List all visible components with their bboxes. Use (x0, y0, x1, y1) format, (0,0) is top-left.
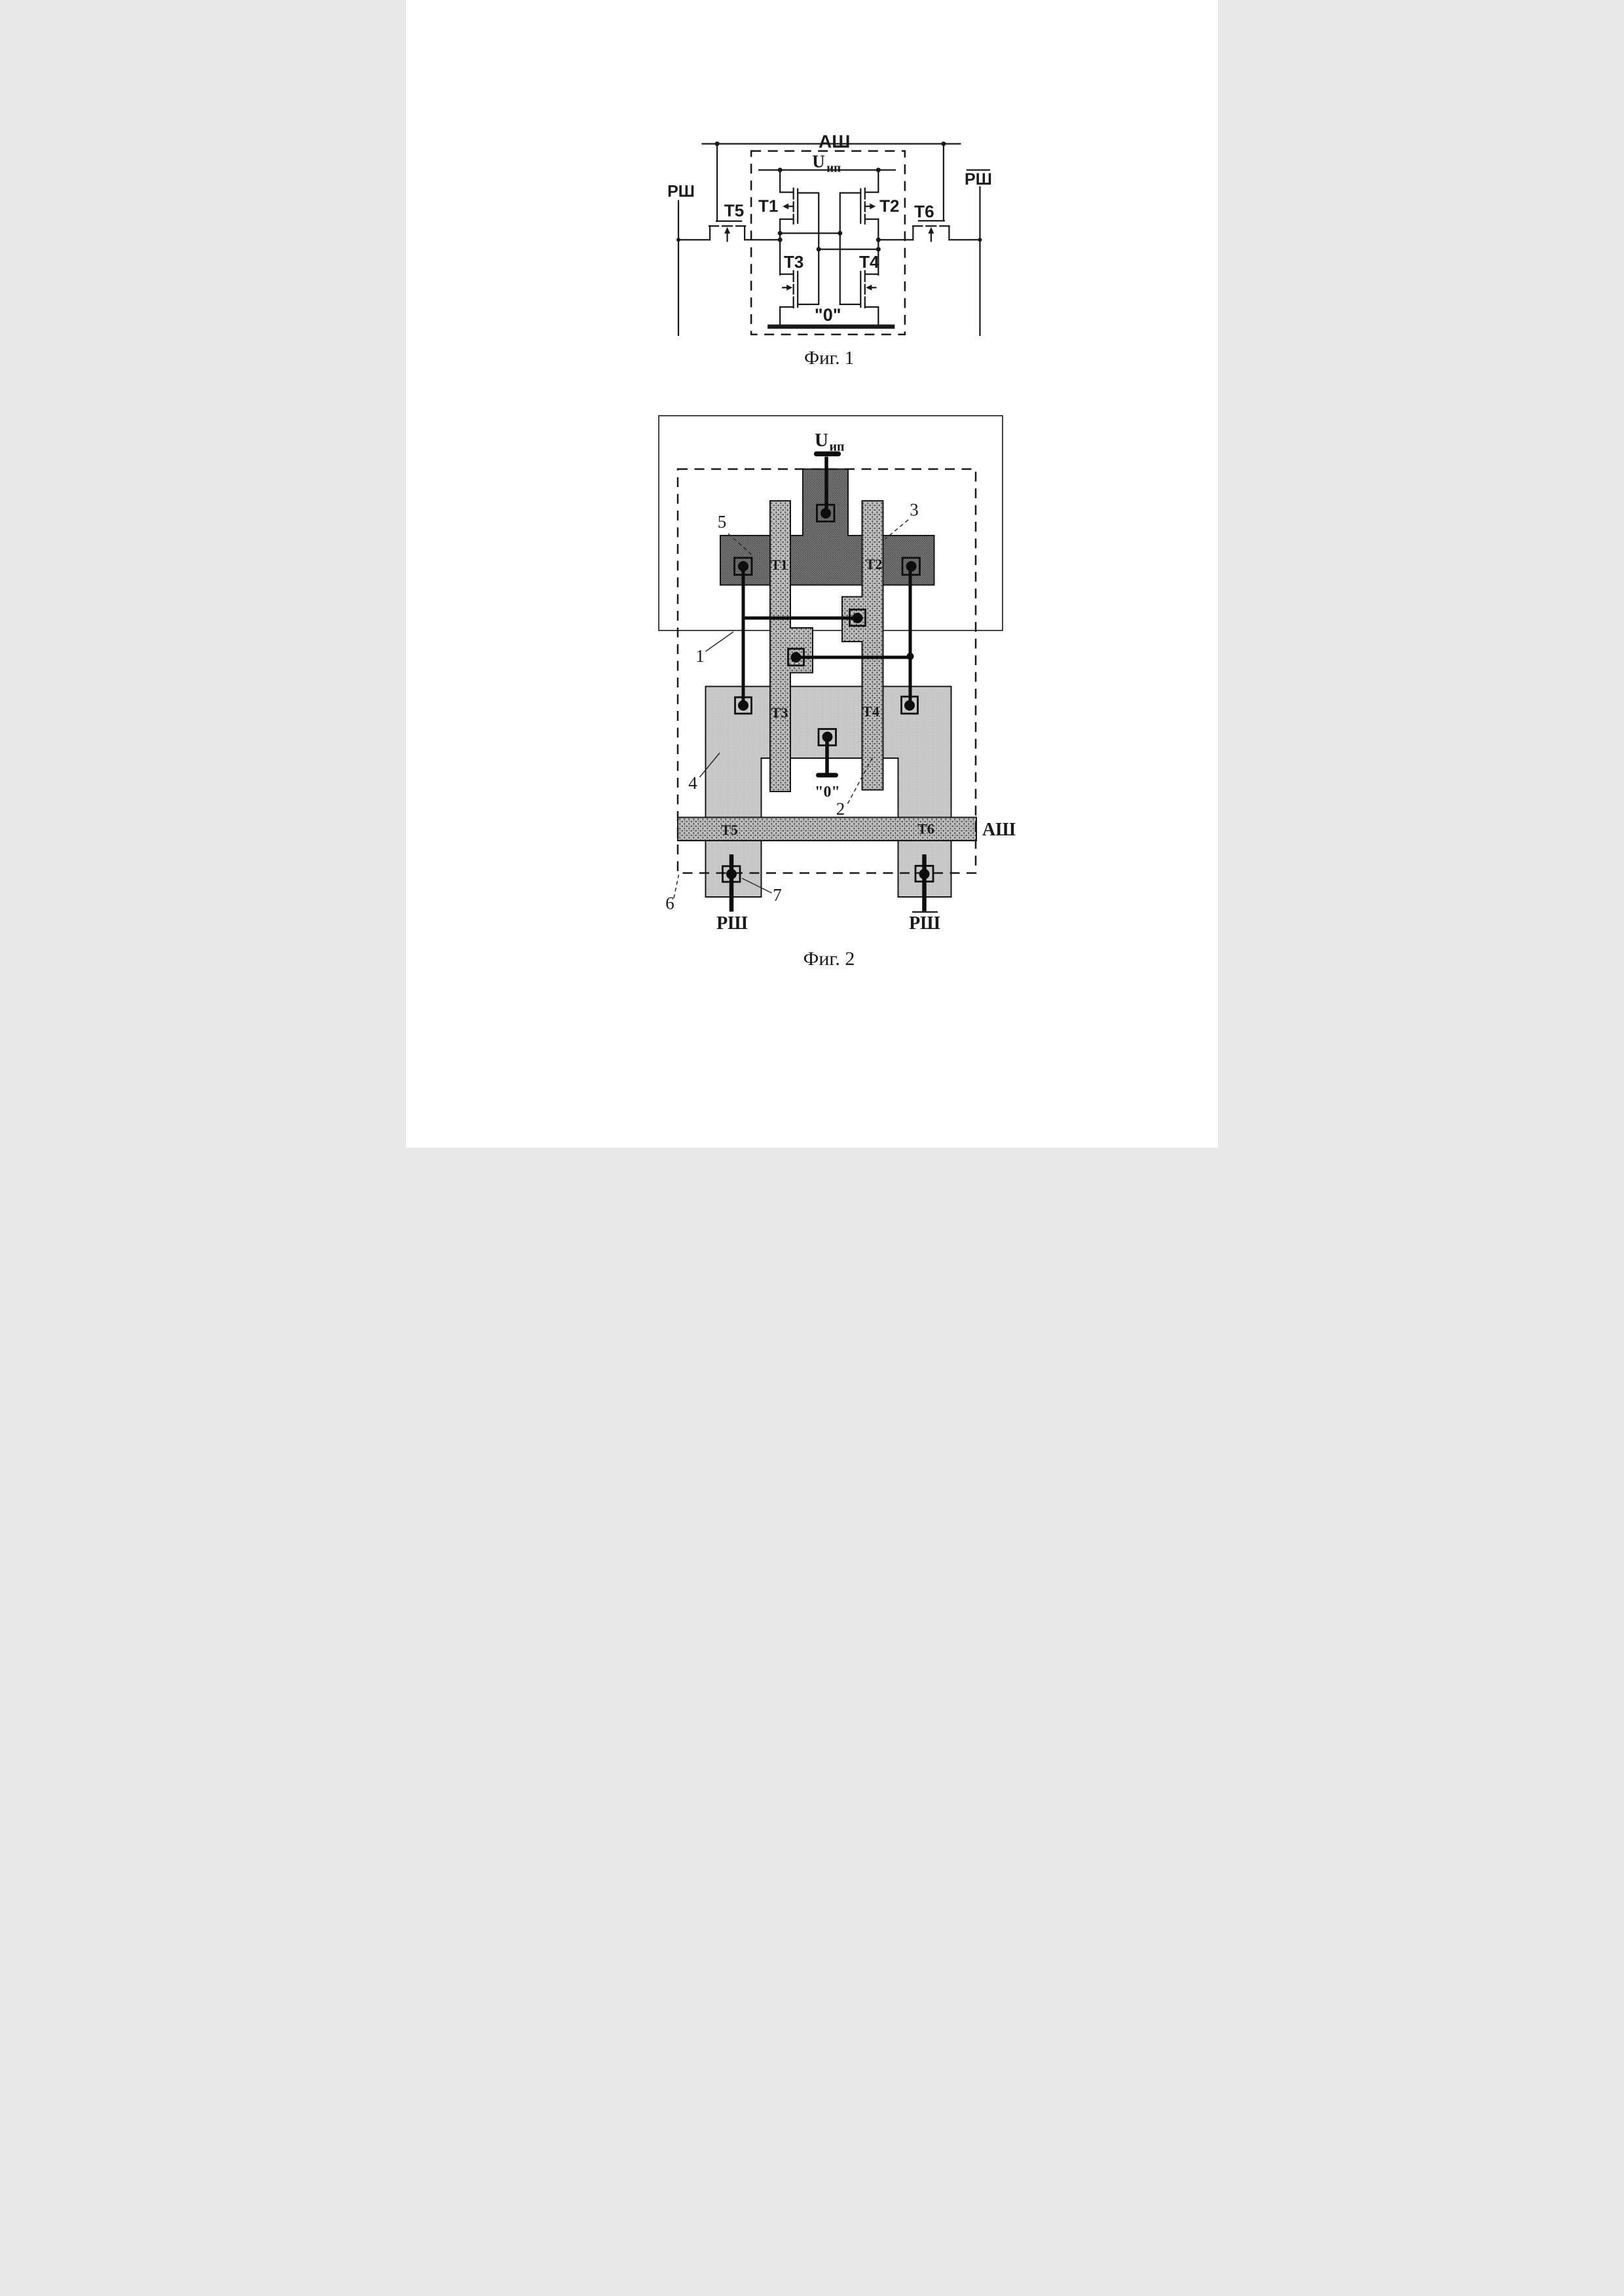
fig2-t3-label: Т3 (771, 704, 788, 721)
fig1-t5-label: Т5 (724, 201, 744, 221)
callout-5: 5 (718, 512, 727, 532)
t4-body-arrow-icon (866, 285, 872, 291)
callout-3: 3 (910, 500, 919, 520)
callout-6: 6 (665, 894, 674, 913)
t3-body-arrow-icon (786, 285, 792, 291)
fig2-t2-label: Т2 (866, 556, 883, 572)
fig1-t3-label: Т3 (784, 252, 803, 272)
t6-body-arrow-icon (928, 227, 934, 234)
fig1-t1-label: Т1 (758, 196, 778, 216)
fig2-t1-label: Т1 (771, 556, 788, 573)
t3-transistor-symbol (780, 271, 818, 326)
t5-transistor-symbol (709, 144, 780, 242)
t2-transistor-symbol (840, 170, 878, 224)
fig1-t2-label: Т2 (879, 196, 899, 216)
fig1-supply-subscript: ип (826, 162, 841, 175)
t1-transistor-symbol (780, 170, 818, 224)
patent-drawing-page: АШ U ип РШ РШ Т5 Т1 Т2 Т6 Т3 Т4 "0" Фиг.… (406, 0, 1218, 1148)
callout-7: 7 (773, 885, 782, 905)
callout-1: 1 (695, 646, 705, 666)
fig2-address-line-label: АШ (982, 820, 1016, 840)
fig2-t6-label: Т6 (917, 821, 934, 837)
t1-body-arrow-icon (783, 204, 788, 210)
fig1-supply-label: U (812, 152, 825, 172)
fig1-ground-label: "0" (815, 305, 841, 325)
cross-coupling-wires (780, 193, 878, 304)
callout-4: 4 (688, 773, 697, 793)
fig2-t4-label: Т4 (862, 703, 879, 720)
bitline-left-wire (678, 201, 710, 335)
svg-text:РШ: РШ (909, 913, 940, 934)
fig2-ground-label: "0" (815, 784, 840, 801)
figure-2-caption: Фиг. 2 (803, 948, 855, 970)
fig2-supply-label: U (815, 430, 828, 451)
fig2-supply-subscript: ип (830, 440, 845, 454)
fig1-bitline-inverted-label: РШ (965, 170, 992, 189)
junction-dots (676, 141, 982, 251)
fig1-t4-label: Т4 (859, 252, 879, 272)
ground-terminal-bar (816, 773, 838, 778)
t2-body-arrow-icon (870, 204, 876, 210)
fig1-t6-label: Т6 (914, 202, 934, 221)
fig2-bitline-label: РШ (716, 913, 748, 934)
t4-transistor-symbol (840, 271, 878, 326)
figure-1-schematic: АШ U ип РШ РШ Т5 Т1 Т2 Т6 Т3 Т4 "0" Фиг.… (661, 126, 1007, 373)
fig2-t5-label: Т5 (721, 822, 738, 838)
t6-transistor-symbol (878, 144, 949, 242)
fig2-bitline-inverted-label: РШ (909, 912, 940, 934)
fig1-address-line-label: АШ (819, 132, 850, 152)
figure-1-caption: Фиг. 1 (804, 348, 854, 369)
bitline-right-wire (949, 170, 989, 335)
fig1-bitline-label: РШ (667, 183, 695, 201)
t5-body-arrow-icon (724, 227, 730, 234)
figure-2-layout: 5 3 1 4 2 6 7 U ип Т1 Т2 Т3 Т4 Т5 Т6 АШ … (655, 403, 1031, 972)
callout-2: 2 (836, 799, 845, 819)
